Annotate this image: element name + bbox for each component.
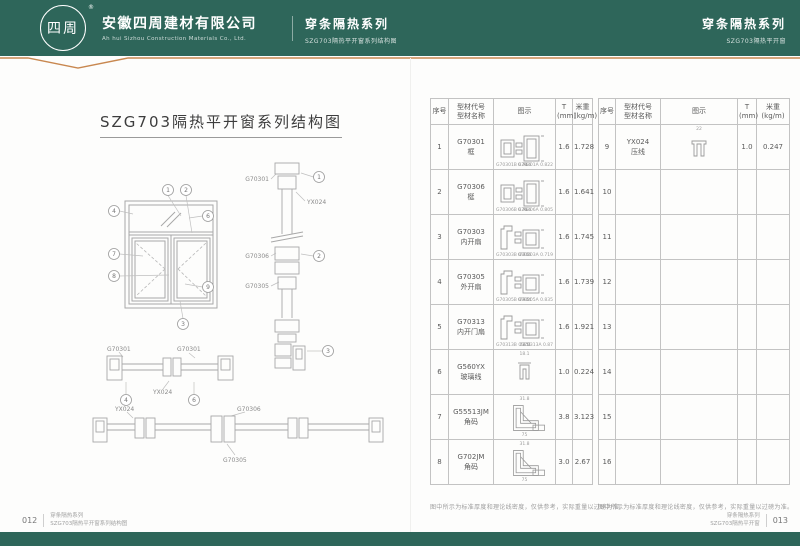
- profile-spec-table: 序号型材代号型材名称图示T(mm)米重(kg/m)9YX024压线221.00.…: [598, 98, 790, 485]
- profile-label: G70305: [245, 283, 269, 290]
- structure-diagram: G70301 YX024 G70306 G70305 G70301 G70301…: [85, 148, 395, 483]
- meter-weight-value: [757, 170, 790, 215]
- page-fold: [410, 58, 411, 532]
- column-header: 型材代号型材名称: [616, 99, 661, 125]
- meter-weight-value: 2.67: [573, 440, 593, 485]
- row-number: 6: [431, 350, 449, 395]
- row-number: 2: [431, 170, 449, 215]
- meter-weight-value: 1.745: [573, 215, 593, 260]
- column-header: 型材代号型材名称: [449, 99, 494, 125]
- meter-weight-value: 1.728: [573, 125, 593, 170]
- diagram-dimension-label: G70303A 0.719: [518, 253, 553, 258]
- meter-weight-value: [757, 260, 790, 305]
- thickness-value: [738, 350, 757, 395]
- company-logo-icon: 四周: [40, 5, 86, 51]
- row-number: 4: [431, 260, 449, 305]
- svg-text:4: 4: [124, 397, 128, 404]
- series-title-center: 穿条隔热系列 SZG703隔热平开窗系列结构图: [305, 15, 397, 45]
- diagram-dimension-label: G70306A 0.805: [518, 208, 553, 213]
- profile-code-name: G55513JM角码: [449, 395, 494, 440]
- profile-diagram-cell: [661, 350, 738, 395]
- profile-table-2: 序号型材代号型材名称图示T(mm)米重(kg/m)9YX024压线221.00.…: [598, 98, 789, 485]
- column-header: T(mm): [556, 99, 573, 125]
- row-number: 14: [599, 350, 616, 395]
- profile-diagram: 22: [662, 127, 736, 168]
- svg-text:8: 8: [112, 273, 116, 280]
- svg-text:3: 3: [181, 321, 185, 328]
- meter-weight-value: [757, 215, 790, 260]
- thickness-value: [738, 170, 757, 215]
- thickness-value: [738, 440, 757, 485]
- svg-text:1: 1: [317, 174, 321, 181]
- profile-diagram: G70303B 0.76678.5G70303A 0.719: [495, 217, 554, 258]
- table-row: 6G560YX玻璃线18.11.00.224: [431, 350, 593, 395]
- profile-diagram-cell: [661, 305, 738, 350]
- meter-weight-value: 1.921: [573, 305, 593, 350]
- profile-code-name: [616, 215, 661, 260]
- table-row: 1G70301框G70301B 0.76678G70301A 0.8221.61…: [431, 125, 593, 170]
- table-row: 3G70303内开扇G70303B 0.76678.5G70303A 0.719…: [431, 215, 593, 260]
- thickness-value: 1.6: [556, 215, 573, 260]
- profile-code-name: YX024压线: [616, 125, 661, 170]
- profile-label: G70306: [237, 406, 261, 413]
- catalog-spread: 四周 ® 安徽四周建材有限公司 Ah hui Sizhou Constructi…: [0, 0, 800, 546]
- footer-divider: [43, 514, 44, 527]
- profile-spec-table: 序号型材代号型材名称图示T(mm)米重(kg/m)1G70301框G70301B…: [430, 98, 593, 485]
- profile-label: G70301: [245, 176, 269, 183]
- profile-diagram-cell: [661, 215, 738, 260]
- table-row: 5G70313内开门扇G70313B 0.85178.5G70313A 0.87…: [431, 305, 593, 350]
- profile-diagram-cell: [661, 395, 738, 440]
- diagram-dimension-label: 75: [522, 478, 528, 483]
- column-header: 序号: [599, 99, 616, 125]
- svg-text:2: 2: [184, 187, 188, 194]
- svg-text:6: 6: [206, 213, 210, 220]
- row-number: 11: [599, 215, 616, 260]
- table-row: 10: [599, 170, 790, 215]
- column-header: T(mm): [738, 99, 757, 125]
- diagram-dimension-label: G70305A 0.835: [518, 298, 553, 303]
- profile-diagram-cell: G70313B 0.85178.5G70313A 0.87: [494, 305, 556, 350]
- table-row: 4G70305外开扇G70305B 0.90478.5G70305A 0.835…: [431, 260, 593, 305]
- profile-code-name: [616, 170, 661, 215]
- thickness-value: 1.6: [556, 305, 573, 350]
- profile-diagram-cell: G70305B 0.90478.5G70305A 0.835: [494, 260, 556, 305]
- diagram-dimension-label: 31.8: [519, 397, 529, 402]
- profile-diagram-cell: [661, 170, 738, 215]
- row-number: 12: [599, 260, 616, 305]
- profile-label: G70301: [177, 346, 201, 353]
- row-number: 5: [431, 305, 449, 350]
- meter-weight-value: 0.247: [757, 125, 790, 170]
- thickness-value: 1.6: [556, 125, 573, 170]
- row-number: 15: [599, 395, 616, 440]
- profile-diagram-cell: 31.875: [494, 395, 556, 440]
- diagram-dimension-label: G70313A 0.87: [521, 343, 553, 348]
- profile-diagram-cell: G70301B 0.76678G70301A 0.822: [494, 125, 556, 170]
- profile-diagram-cell: 22: [661, 125, 738, 170]
- row-number: 13: [599, 305, 616, 350]
- profile-code-name: G560YX玻璃线: [449, 350, 494, 395]
- diagram-dimension-label: 31.8: [519, 442, 529, 447]
- column-header: 序号: [431, 99, 449, 125]
- thickness-value: 1.0: [738, 125, 757, 170]
- profile-diagram: G70306B 0.76676G70306A 0.805: [495, 172, 554, 213]
- thickness-value: 1.6: [556, 260, 573, 305]
- svg-text:6: 6: [192, 397, 196, 404]
- profile-diagram-cell: 18.1: [494, 350, 556, 395]
- diagram-dimension-label: G70301A 0.822: [518, 163, 553, 168]
- profile-code-name: [616, 350, 661, 395]
- footer-divider: [766, 514, 767, 527]
- company-name-en: Ah hui Sizhou Construction Materials Co.…: [102, 36, 257, 42]
- page-number: 013: [773, 516, 788, 525]
- diagram-dimension-label: 22: [696, 127, 702, 132]
- profile-diagram-cell: [661, 440, 738, 485]
- meter-weight-value: 1.739: [573, 260, 593, 305]
- company-block: 安徽四周建材有限公司 Ah hui Sizhou Construction Ma…: [102, 13, 257, 42]
- thickness-value: [738, 395, 757, 440]
- table-row: 9YX024压线221.00.247: [599, 125, 790, 170]
- profile-code-name: [616, 260, 661, 305]
- profile-code-name: G70306梃: [449, 170, 494, 215]
- profile-label: YX024: [114, 406, 134, 413]
- column-header: 图示: [661, 99, 738, 125]
- series-title-right: 穿条隔热系列 SZG703隔热平开窗: [702, 15, 786, 45]
- registered-trademark-icon: ®: [88, 4, 94, 11]
- bottom-band: [0, 532, 800, 546]
- horizontal-section-b: [93, 416, 383, 442]
- thickness-value: 3.8: [556, 395, 573, 440]
- profile-label: G70301: [107, 346, 131, 353]
- meter-weight-value: [757, 395, 790, 440]
- series-subtitle: SZG703隔热平开窗: [702, 36, 786, 45]
- profile-code-name: [616, 395, 661, 440]
- thickness-value: 1.0: [556, 350, 573, 395]
- thickness-value: 3.0: [556, 440, 573, 485]
- row-number: 1: [431, 125, 449, 170]
- page-number: 012: [22, 516, 37, 525]
- fragment-section: [275, 344, 305, 370]
- profile-diagram: 18.1: [495, 352, 554, 393]
- table-row: 14: [599, 350, 790, 395]
- profile-label: G70306: [245, 253, 269, 260]
- row-number: 3: [431, 215, 449, 260]
- column-header: 米重(kg/m): [573, 99, 593, 125]
- table-row: 16: [599, 440, 790, 485]
- profile-diagram: G70301B 0.76678G70301A 0.822: [495, 127, 554, 168]
- profile-table-1: 序号型材代号型材名称图示T(mm)米重(kg/m)1G70301框G70301B…: [430, 98, 592, 485]
- page-header: 四周 ® 安徽四周建材有限公司 Ah hui Sizhou Constructi…: [0, 0, 800, 56]
- meter-weight-value: [757, 350, 790, 395]
- logo-text: 四周: [47, 18, 79, 38]
- horizontal-section-a: [107, 356, 233, 380]
- row-number: 8: [431, 440, 449, 485]
- profile-diagram-cell: [661, 260, 738, 305]
- table-row: 2G70306梃G70306B 0.76676G70306A 0.8051.61…: [431, 170, 593, 215]
- profile-code-name: G70305外开扇: [449, 260, 494, 305]
- footer-text: 穿条隔热系列 SZG703隔热平开窗: [710, 512, 760, 529]
- column-header: 米重(kg/m): [757, 99, 790, 125]
- table-row: 12: [599, 260, 790, 305]
- vertical-section: [271, 163, 303, 342]
- svg-text:9: 9: [206, 284, 210, 291]
- svg-text:4: 4: [112, 208, 116, 215]
- profile-label: YX024: [306, 199, 326, 206]
- svg-text:7: 7: [112, 251, 116, 258]
- row-number: 7: [431, 395, 449, 440]
- profile-code-name: G70303内开扇: [449, 215, 494, 260]
- table-row: 11: [599, 215, 790, 260]
- accent-line: [0, 56, 800, 70]
- footer-left: 012 穿条隔热系列 SZG703隔热平开窗系列结构图: [22, 512, 127, 529]
- meter-weight-value: [757, 440, 790, 485]
- row-number: 9: [599, 125, 616, 170]
- profile-code-name: [616, 305, 661, 350]
- profile-code-name: G70301框: [449, 125, 494, 170]
- profile-diagram: G70305B 0.90478.5G70305A 0.835: [495, 262, 554, 303]
- profile-diagram-cell: G70303B 0.76678.5G70303A 0.719: [494, 215, 556, 260]
- meter-weight-value: 1.641: [573, 170, 593, 215]
- company-name-cn: 安徽四周建材有限公司: [102, 13, 257, 33]
- profile-diagram-cell: G70306B 0.76676G70306A 0.805: [494, 170, 556, 215]
- thickness-value: [738, 215, 757, 260]
- row-number: 16: [599, 440, 616, 485]
- diagram-dimension-label: 75: [522, 433, 528, 438]
- table-row: 13: [599, 305, 790, 350]
- profile-diagram: 31.875: [495, 442, 554, 483]
- table-row: 15: [599, 395, 790, 440]
- thickness-value: [738, 305, 757, 350]
- profile-diagram: 31.875: [495, 397, 554, 438]
- svg-text:2: 2: [317, 253, 321, 260]
- profile-diagram-cell: 31.875: [494, 440, 556, 485]
- meter-weight-value: 0.224: [573, 350, 593, 395]
- table-row: 7G55513JM角码31.8753.83.123: [431, 395, 593, 440]
- table-note: 图中所示为标准厚度和理论线密度，仅供参考，实际重量以过磅为准。: [598, 502, 793, 511]
- svg-text:3: 3: [326, 348, 330, 355]
- thickness-value: [738, 260, 757, 305]
- series-name: 穿条隔热系列: [305, 15, 397, 32]
- profile-diagram: G70313B 0.85178.5G70313A 0.87: [495, 307, 554, 348]
- profile-code-name: [616, 440, 661, 485]
- profile-code-name: G702JM角码: [449, 440, 494, 485]
- page-title: SZG703隔热平开窗系列结构图: [100, 111, 342, 138]
- header-divider: [292, 16, 293, 41]
- profile-label: G70305: [223, 457, 247, 464]
- column-header: 图示: [494, 99, 556, 125]
- footer-text: 穿条隔热系列 SZG703隔热平开窗系列结构图: [50, 512, 127, 529]
- table-note: 图中所示为标准厚度和理论线密度，仅供参考，实际重量以过磅为准。: [430, 502, 625, 511]
- series-subtitle: SZG703隔热平开窗系列结构图: [305, 36, 397, 45]
- meter-weight-value: 3.123: [573, 395, 593, 440]
- thickness-value: 1.6: [556, 170, 573, 215]
- table-row: 8G702JM角码31.8753.02.67: [431, 440, 593, 485]
- meter-weight-value: [757, 305, 790, 350]
- diagram-dimension-label: 18.1: [519, 352, 529, 357]
- row-number: 10: [599, 170, 616, 215]
- profile-code-name: G70313内开门扇: [449, 305, 494, 350]
- footer-right: 穿条隔热系列 SZG703隔热平开窗 013: [710, 512, 788, 529]
- series-name: 穿条隔热系列: [702, 15, 786, 32]
- svg-text:1: 1: [166, 187, 170, 194]
- profile-label: YX024: [152, 389, 172, 396]
